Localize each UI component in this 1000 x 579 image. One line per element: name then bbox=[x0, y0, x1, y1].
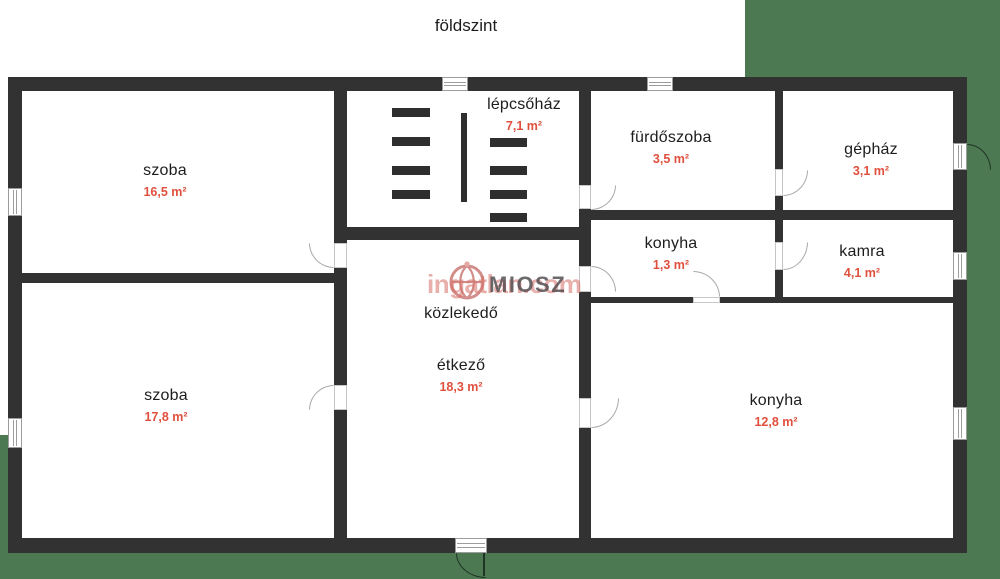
room-name: gépház bbox=[844, 141, 898, 159]
stair-tread bbox=[392, 137, 430, 146]
entrance-door-panel bbox=[455, 538, 487, 553]
entrance-door-leaf bbox=[483, 553, 485, 576]
room-area: 18,3 m² bbox=[437, 380, 485, 394]
room-label-szoba-1: szoba 16,5 m² bbox=[143, 162, 187, 199]
window bbox=[953, 143, 967, 170]
room-area: 1,3 m² bbox=[645, 258, 698, 272]
door-opening bbox=[775, 169, 783, 196]
room-label-szoba-2: szoba 17,8 m² bbox=[144, 387, 188, 424]
window bbox=[8, 418, 22, 448]
window bbox=[8, 188, 22, 216]
room-area: 3,5 m² bbox=[630, 152, 711, 166]
room-name: kamra bbox=[839, 243, 884, 261]
stair-tread bbox=[490, 213, 527, 222]
stair-tread bbox=[392, 190, 430, 199]
watermark-org: MIOSZ bbox=[489, 272, 566, 298]
room-label-konyha-small: konyha 1,3 m² bbox=[645, 235, 698, 272]
room-label-kozlekedo: közlekedő bbox=[424, 305, 498, 323]
room-label-furdoszoba: fürdőszoba 3,5 m² bbox=[630, 129, 711, 166]
background-photo-bottom bbox=[0, 553, 745, 579]
room-area: 7,1 m² bbox=[487, 119, 561, 133]
door-opening bbox=[693, 297, 720, 303]
room-area: 16,5 m² bbox=[143, 185, 187, 199]
stair-tread bbox=[490, 166, 527, 175]
door-opening bbox=[334, 243, 347, 268]
door-opening bbox=[579, 398, 591, 428]
door-opening bbox=[334, 385, 347, 410]
room-label-lepcsohaz: lépcsőház 7,1 m² bbox=[487, 96, 561, 133]
background-photo-left-sliver bbox=[0, 435, 8, 553]
window bbox=[647, 77, 673, 91]
room-name: szoba bbox=[143, 162, 187, 180]
room-name: konyha bbox=[645, 235, 698, 253]
stair-tread bbox=[490, 138, 527, 147]
stair-tread bbox=[392, 108, 430, 117]
room-area: 3,1 m² bbox=[844, 164, 898, 178]
stair-tread bbox=[392, 166, 430, 175]
window bbox=[953, 407, 967, 440]
room-name: fürdőszoba bbox=[630, 129, 711, 147]
room-label-gephaz: gépház 3,1 m² bbox=[844, 141, 898, 178]
floor-title: földszint bbox=[435, 16, 497, 36]
room-label-kamra: kamra 4,1 m² bbox=[839, 243, 884, 280]
door-opening bbox=[775, 242, 783, 270]
room-area: 12,8 m² bbox=[750, 415, 803, 429]
room-area: 17,8 m² bbox=[144, 410, 188, 424]
stair-divider bbox=[461, 113, 467, 202]
room-name: lépcsőház bbox=[487, 96, 561, 114]
floor-plan-canvas: szoba 16,5 m² szoba 17,8 m² lépcsőház 7,… bbox=[0, 0, 1000, 579]
stair-tread bbox=[490, 190, 527, 199]
room-name: közlekedő bbox=[424, 305, 498, 323]
window bbox=[953, 252, 967, 280]
room-label-konyha-large: konyha 12,8 m² bbox=[750, 392, 803, 429]
room-area: 4,1 m² bbox=[839, 266, 884, 280]
room-name: szoba bbox=[144, 387, 188, 405]
room-name: konyha bbox=[750, 392, 803, 410]
room-label-etkezo: étkező 18,3 m² bbox=[437, 357, 485, 394]
door-opening bbox=[579, 185, 591, 209]
window bbox=[442, 77, 468, 91]
room-name: étkező bbox=[437, 357, 485, 375]
